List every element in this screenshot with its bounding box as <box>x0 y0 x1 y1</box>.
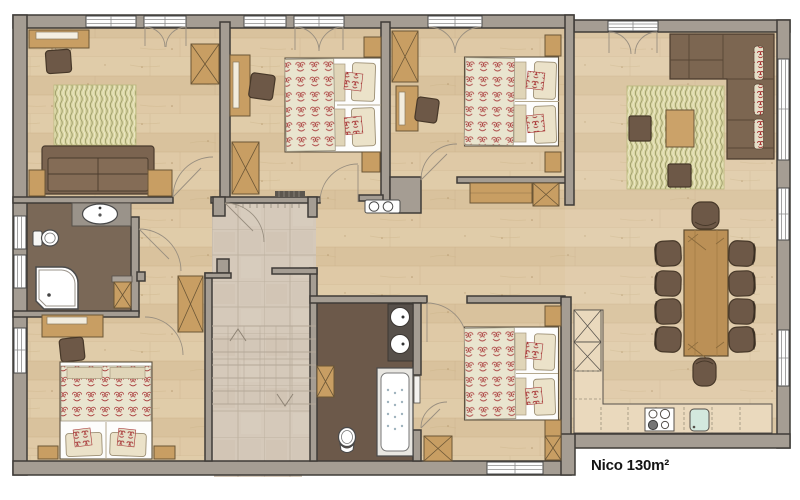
svg-text:Nico 130m²: Nico 130m² <box>591 457 669 474</box>
